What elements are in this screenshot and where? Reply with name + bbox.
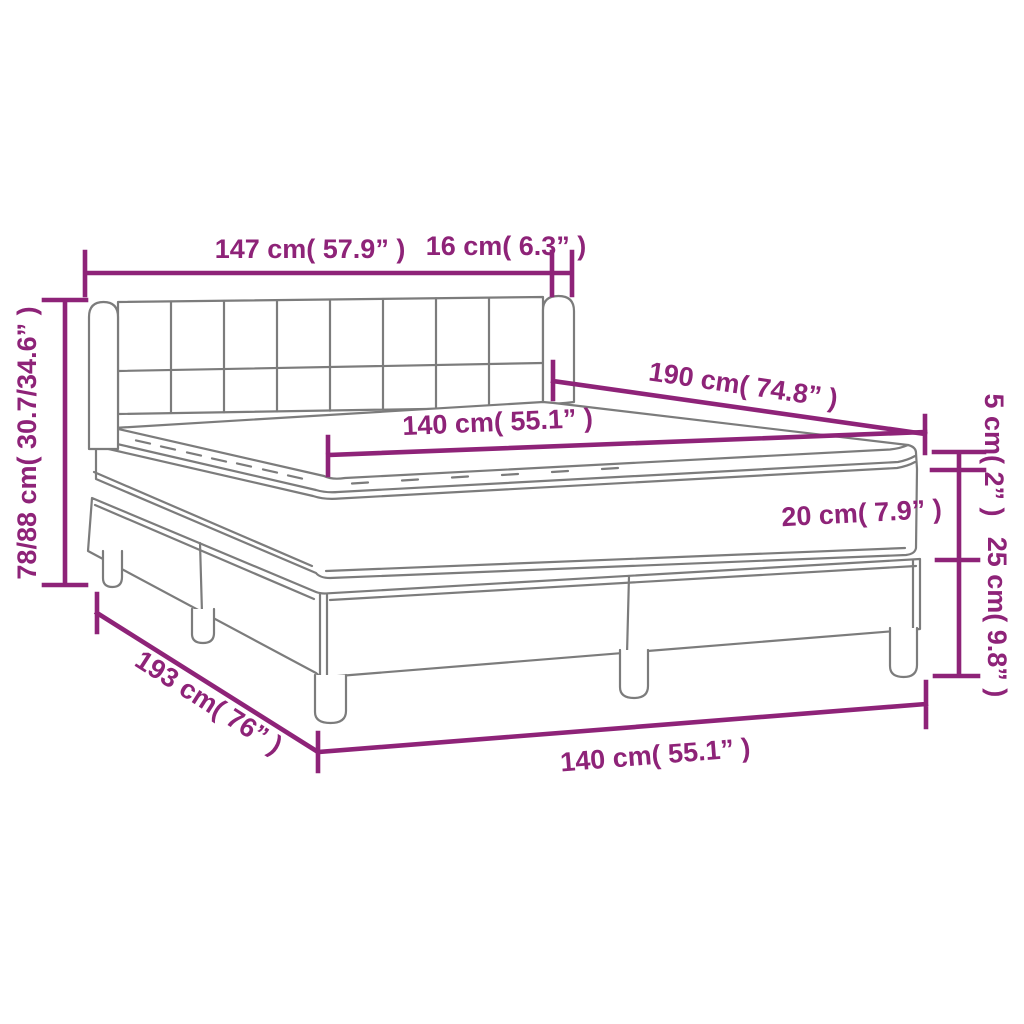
leg-right	[890, 628, 917, 677]
leg-front-corner	[315, 675, 346, 723]
label-base-height: 25 cm( 9.8” )	[982, 537, 1012, 698]
headboard	[118, 296, 574, 414]
leg-middle-left	[192, 609, 214, 643]
label-headboard-wing-depth: 16 cm( 6.3” )	[426, 231, 587, 261]
headboard-right-wing	[543, 296, 574, 404]
label-overall-length: 193 cm( 76” )	[130, 645, 288, 761]
label-topper-thickness: 5 cm( 2” )	[979, 393, 1009, 516]
dim-line-overall-height	[44, 300, 86, 585]
dimension-diagram: 147 cm( 57.9” ) 16 cm( 6.3” ) 78/88 cm( …	[0, 0, 1024, 1024]
bed-diagram-svg: 147 cm( 57.9” ) 16 cm( 6.3” ) 78/88 cm( …	[0, 0, 1024, 1024]
leg-back-left	[103, 551, 122, 587]
label-overall-height: 78/88 cm( 30.7/34.6” )	[12, 306, 42, 579]
label-overall-width: 140 cm( 55.1” )	[559, 733, 751, 778]
leg-middle-front	[620, 650, 648, 698]
headboard-left-wing	[89, 302, 118, 449]
dim-line-right-heights	[932, 452, 984, 676]
label-bed-length-top: 190 cm( 74.8” )	[647, 356, 840, 413]
label-headboard-width: 147 cm( 57.9” )	[215, 234, 406, 264]
